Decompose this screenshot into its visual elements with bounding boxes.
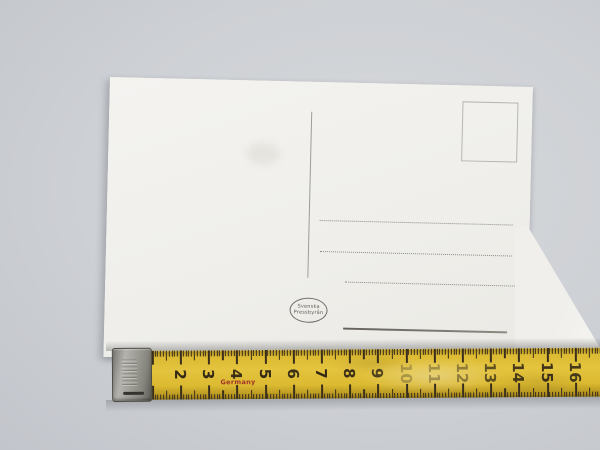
tick-mm [502,392,503,398]
tick-mm [360,349,361,355]
tick-mm [431,392,432,398]
tick-cm [321,385,323,399]
tick-mm [538,392,539,398]
tick-mm [310,393,311,399]
tick-mm [273,350,274,356]
cm-number: 11 [420,363,448,383]
tick-mm [262,350,263,356]
tick-mm [318,350,319,356]
tick-mm [594,348,595,354]
card-smudge [246,142,281,165]
tick-mm [423,392,424,398]
tick-mm [496,392,497,398]
tick-mm [595,391,596,397]
tick-mm [341,349,342,355]
tick-mm [225,394,226,400]
tick-cm [575,348,577,362]
tick-mm [453,349,454,355]
tick-mm [515,348,516,354]
tick-mm [287,393,288,399]
tick-mm [499,392,500,398]
tick-cm [546,348,548,362]
tick-mm [357,349,358,355]
tick-mm [282,393,283,399]
tick-mm [513,348,514,354]
tick-mm [154,351,155,357]
tick-mm [259,350,260,356]
tick-half [476,348,477,358]
cm-number: 4 [222,364,250,384]
tick-mm [185,350,186,356]
tick-half [279,350,280,360]
tick-cm [180,386,182,400]
tick-mm [290,393,291,399]
tick-mm [327,393,328,399]
tick-cm [349,349,351,363]
tick-mm [487,348,488,354]
tick-mm [527,348,528,354]
tick-mm [171,351,172,357]
tick-mm [355,393,356,399]
tick-mm [183,350,184,356]
tick-mm [191,350,192,356]
tick-mm [380,393,381,399]
tick-mm [295,350,296,356]
tick-mm [211,350,212,356]
tick-cm [208,385,210,399]
tick-mm [160,351,161,357]
cm-number: 7 [307,363,335,383]
tick-mm [544,391,545,397]
tick-mm [586,348,587,354]
tick-mm [276,350,277,356]
divider-line [307,112,312,278]
tick-half [476,388,477,398]
tick-mm [191,394,192,400]
photo-surface: Svenska Pressbyrån Germany 2345678910111… [0,0,600,450]
tick-mm [169,394,170,400]
tick-mm [228,394,229,400]
tick-cm [180,351,182,365]
tick-mm [394,349,395,355]
tick-mm [299,393,300,399]
tick-mm [324,393,325,399]
tick-mm [529,348,530,354]
tick-mm [366,349,367,355]
tick-mm [440,392,441,398]
tick-mm [358,393,359,399]
cm-number: 12 [448,362,476,382]
tick-mm [310,350,311,356]
tick-mm [417,349,418,355]
tick-half [532,348,533,358]
tick-half [335,349,336,359]
tick-mm [372,349,373,355]
tick-mm [451,349,452,355]
tick-mm [439,349,440,355]
clip-embossing [122,358,137,386]
tick-mm [253,394,254,400]
tick-mm [273,393,274,399]
tick-mm [428,349,429,355]
tick-mm [386,349,387,355]
tick-mm [304,393,305,399]
tick-mm [220,394,221,400]
tick-mm [479,392,480,398]
tick-mm [408,349,409,355]
tick-mm [498,348,499,354]
postcard-back: Svenska Pressbyrån [103,77,532,367]
tick-mm [242,394,243,400]
address-line [320,251,512,257]
tick-mm [383,393,384,399]
tick-mm [372,393,373,399]
tick-mm [301,393,302,399]
tick-mm [493,348,494,354]
tick-mm [459,349,460,355]
tick-mm [467,349,468,355]
tick-mm [329,349,330,355]
tick-mm [516,392,517,398]
tick-mm [507,392,508,398]
tick-mm [521,348,522,354]
tick-mm [248,350,249,356]
tick-mm [163,394,164,400]
tick-mm [330,393,331,399]
cm-number: 6 [279,364,307,384]
tick-mm [566,391,567,397]
tick-mm [555,348,556,354]
tick-mm [369,349,370,355]
tick-mm [219,350,220,356]
tick-mm [454,392,455,398]
tick-cm [293,385,295,399]
tick-mm [228,350,229,356]
tick-mm [411,349,412,355]
tick-cm [321,350,323,364]
tick-mm [563,348,564,354]
tick-half [561,348,562,358]
tick-mm [484,348,485,354]
tick-mm [177,394,178,400]
tick-mm [326,349,327,355]
tick-mm [188,350,189,356]
cm-number: 8 [335,363,363,383]
tick-mm [581,391,582,397]
tick-mm [510,348,511,354]
tick-mm [304,350,305,356]
tick-half [194,350,195,360]
tick-half [307,350,308,360]
tick-mm [157,351,158,357]
cm-number: 13 [476,362,504,382]
tick-mm [245,350,246,356]
tick-cm [377,384,379,398]
cm-number: 15 [533,362,561,382]
tick-cm [405,349,407,363]
tick-mm [597,348,598,354]
stamp-box [461,101,518,162]
tick-mm [400,349,401,355]
tick-mm [203,394,204,400]
tick-half [363,349,364,359]
tick-mm [276,393,277,399]
tick-mm [298,350,299,356]
tick-mm [361,393,362,399]
tick-half [194,390,195,400]
tick-mm [535,348,536,354]
tick-half [392,389,393,399]
tick-mm [403,349,404,355]
tick-mm [592,348,593,354]
tick-mm [541,391,542,397]
tick-half [251,390,252,400]
tick-mm [394,393,395,399]
tick-mm [437,392,438,398]
tick-mm [564,391,565,397]
tick-cm [265,385,267,399]
tick-mm [496,348,497,354]
tick-mm [239,350,240,356]
tick-cm [349,384,351,398]
tick-mm [403,392,404,398]
tick-mm [577,348,578,354]
tick-mm [375,393,376,399]
cm-number: 3 [194,364,222,384]
tick-mm [318,393,319,399]
tick-mm [485,392,486,398]
tick-mm [281,350,282,356]
tick-cm [434,384,436,398]
tick-half [420,349,421,359]
address-line [320,220,513,226]
tick-mm [158,394,159,400]
tick-mm [347,393,348,399]
tick-mm [270,393,271,399]
tick-mm [233,350,234,356]
tick-mm [352,349,353,355]
tick-mm [177,351,178,357]
tick-mm [572,348,573,354]
tick-cm [208,350,210,364]
tick-mm [256,350,257,356]
tick-mm [583,348,584,354]
tick-mm [312,350,313,356]
tick-mm [315,350,316,356]
tape-metal-clip [112,348,152,402]
tick-mm [205,350,206,356]
tick-mm [206,394,207,400]
tick-mm [202,350,203,356]
tick-cm [152,351,154,365]
tick-mm [488,392,489,398]
tick-half [335,389,336,399]
tick-mm [459,392,460,398]
address-line [345,282,515,287]
tick-mm [284,350,285,356]
tick-cm [236,385,238,399]
tick-mm [465,349,466,355]
tick-half [279,389,280,399]
tick-mm [253,350,254,356]
cm-number: 16 [561,362,589,382]
tick-half [448,349,449,359]
tick-mm [380,349,381,355]
tick-mm [451,392,452,398]
tick-mm [245,394,246,400]
tick-half [589,348,590,358]
tick-mm [507,348,508,354]
tick-mm [267,350,268,356]
cm-number: 5 [251,364,279,384]
publisher-oval-stamp: Svenska Pressbyrån [289,297,328,323]
tick-mm [445,392,446,398]
tick-mm [544,348,545,354]
tick-half [307,389,308,399]
tick-cm [264,350,266,364]
tick-mm [366,393,367,399]
tick-mm [290,350,291,356]
tick-mm [558,348,559,354]
tick-mm [538,348,539,354]
tick-mm [155,394,156,400]
tick-mm [338,393,339,399]
tick-mm [530,392,531,398]
tick-mm [200,350,201,356]
tick-mm [341,393,342,399]
tick-cm [152,386,154,400]
tick-mm [231,394,232,400]
tick-mm [558,391,559,397]
tick-mm [160,394,161,400]
tape-band: Germany 2345678910111213141516 [148,348,600,400]
tick-mm [473,392,474,398]
tick-mm [471,392,472,398]
tick-mm [315,393,316,399]
tick-mm [169,351,170,357]
tick-mm [442,392,443,398]
tick-mm [592,391,593,397]
tick-mm [555,391,556,397]
tick-mm [388,349,389,355]
tick-half [420,388,421,398]
tick-half [589,387,590,397]
tick-mm [216,350,217,356]
tick-mm [436,349,437,355]
tick-mm [397,349,398,355]
tick-half [448,388,449,398]
tick-mm [482,348,483,354]
tick-mm [332,349,333,355]
tick-mm [473,348,474,354]
tick-half [222,390,223,400]
tick-half [250,350,251,360]
tick-mm [513,392,514,398]
tick-mm [417,392,418,398]
tick-mm [442,349,443,355]
tick-mm [535,392,536,398]
tick-mm [397,393,398,399]
tick-half [561,387,562,397]
tick-mm [414,392,415,398]
measuring-tape: Germany 2345678910111213141516 [112,345,600,402]
tick-half [363,389,364,399]
tick-mm [217,394,218,400]
tick-mm [425,349,426,355]
tick-mm [186,394,187,400]
tick-mm [414,349,415,355]
tick-cm [462,384,464,398]
tick-cm [547,383,549,397]
tick-mm [374,349,375,355]
tick-cm [434,349,436,363]
tick-mm [268,393,269,399]
tick-half [504,348,505,358]
tick-mm [352,393,353,399]
tick-mm [597,391,598,397]
tick-mm [256,393,257,399]
tick-cm [377,349,379,363]
tick-mm [332,393,333,399]
tick-mm [409,392,410,398]
tick-cm [575,383,577,397]
tick-mm [301,350,302,356]
tick-mm [524,392,525,398]
tick-mm [197,394,198,400]
tick-mm [510,392,511,398]
publisher-name-line2: Pressbyrån [294,310,324,316]
tick-mm [493,392,494,398]
tick-mm [214,350,215,356]
clip-slit [123,392,144,395]
tick-mm [431,349,432,355]
tick-mm [369,393,370,399]
tick-cm [462,349,464,363]
tick-mm [200,394,201,400]
tick-mm [313,393,314,399]
tick-mm [225,350,226,356]
tick-cm [518,348,520,362]
tick-mm [400,392,401,398]
cm-number: 14 [504,362,532,382]
tick-mm [425,392,426,398]
tick-mm [552,348,553,354]
tick-mm [527,392,528,398]
tick-mm [501,348,502,354]
tick-mm [262,393,263,399]
tick-mm [479,348,480,354]
tick-mm [422,349,423,355]
tick-half [533,388,534,398]
cm-number: 9 [363,363,391,383]
tick-cm [293,350,295,364]
tick-mm [386,393,387,399]
tick-mm [524,348,525,354]
tick-mm [174,351,175,357]
tick-mm [389,393,390,399]
tick-mm [183,394,184,400]
tick-mm [287,350,288,356]
tick-cm [490,383,492,397]
tick-mm [470,348,471,354]
tick-mm [284,393,285,399]
tick-mm [550,391,551,397]
tick-mm [569,348,570,354]
tick-mm [174,394,175,400]
tick-mm [549,348,550,354]
address-line [343,328,507,334]
tick-mm [163,351,164,357]
